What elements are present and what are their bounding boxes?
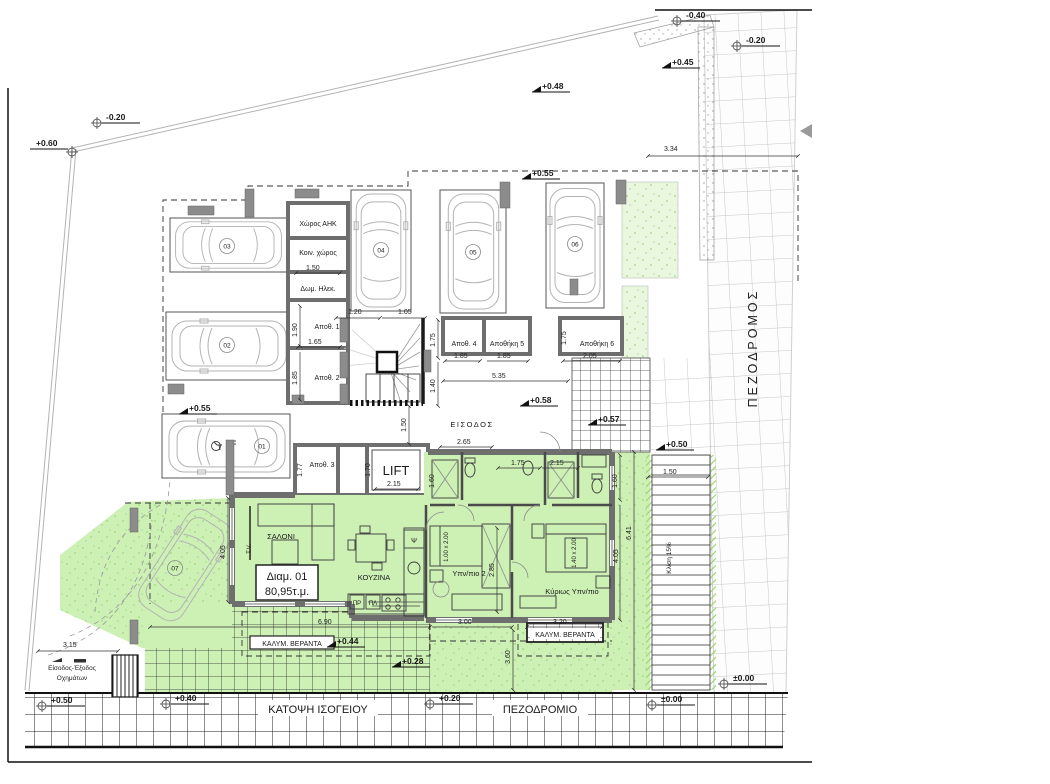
dim-1-50-comm: 1.50 bbox=[306, 265, 320, 272]
driveway-gate bbox=[112, 655, 138, 697]
svg-text:04: 04 bbox=[377, 248, 385, 255]
elevation-top-2: +0.55 bbox=[522, 168, 560, 179]
svg-text:+0.44: +0.44 bbox=[337, 636, 359, 646]
label-lift: LIFT bbox=[383, 463, 410, 478]
dim-3-34: 3.34 bbox=[664, 146, 678, 153]
sidewalk-title-plate: ΠΕΖΟΔΡΟΜΙΟ bbox=[492, 700, 588, 716]
svg-text:ΚΑΛΥΜ. ΒΕΡΑΝΤΑ: ΚΑΛΥΜ. ΒΕΡΑΝΤΑ bbox=[262, 641, 322, 648]
dim-2-15-lift: 2.15 bbox=[387, 481, 401, 488]
dim-1-50-ramp: 1.50 bbox=[663, 469, 677, 476]
veranda-label-left: ΚΑΛΥΜ. ΒΕΡΑΝΤΑ bbox=[250, 636, 334, 649]
dim-1-77: 1.77 bbox=[297, 463, 304, 477]
access-ramp bbox=[646, 455, 716, 690]
svg-text:07: 07 bbox=[171, 566, 179, 573]
svg-text:01: 01 bbox=[258, 444, 266, 451]
svg-text:±0.00: ±0.00 bbox=[733, 673, 754, 683]
svg-text:+0.28: +0.28 bbox=[402, 656, 424, 666]
dim-6-90: 6.90 bbox=[318, 619, 332, 626]
label-ramp-slope: Κλίση 15% bbox=[665, 542, 673, 574]
label-dryer: ΠΛ bbox=[369, 601, 377, 607]
label-fridge: Ψ bbox=[411, 538, 417, 545]
svg-text:+0.55: +0.55 bbox=[532, 168, 554, 178]
label-storage5: Αποθήκη 5 bbox=[490, 341, 524, 348]
label-storage6: Αποθήκη 6 bbox=[580, 341, 614, 348]
dim-1-60-b: 1.60 bbox=[612, 474, 619, 488]
entrance-forecourt bbox=[572, 358, 712, 452]
storage-row bbox=[443, 318, 622, 354]
dim-1-90: 1.90 bbox=[292, 323, 299, 337]
direction-triangle-icon bbox=[800, 124, 812, 138]
dim-2-15-bath: 2.15 bbox=[550, 460, 564, 467]
dim-1-60-a: 1.60 bbox=[429, 474, 436, 488]
label-storage1: Αποθ. 1 bbox=[315, 324, 340, 331]
svg-text:+0.45: +0.45 bbox=[672, 57, 694, 67]
svg-text:06: 06 bbox=[571, 242, 579, 249]
svg-text:+0.48: +0.48 bbox=[542, 81, 564, 91]
svg-text:03: 03 bbox=[223, 244, 231, 251]
ground-floor-plan-drawing: 03 02 01 04 05 06 07 bbox=[0, 0, 1050, 784]
dim-1-85-st2: 1.85 bbox=[292, 371, 299, 385]
svg-text:+0.20: +0.20 bbox=[439, 693, 461, 703]
label-vehicle-access-1: Είσοδος-Έξοδος bbox=[48, 664, 96, 672]
dim-1-20: 1.20 bbox=[348, 309, 362, 316]
dim-1-75-st4: 1.75 bbox=[430, 333, 437, 347]
floor-plan-sheet: 03 02 01 04 05 06 07 bbox=[0, 0, 1050, 784]
svg-text:+0.57: +0.57 bbox=[598, 414, 620, 424]
elevation-parking: +0.55 bbox=[179, 403, 217, 414]
dim-4-05-right: 4.05 bbox=[613, 549, 620, 563]
elevation-top-left-1: -0.20 bbox=[91, 112, 140, 129]
svg-text:05: 05 bbox=[469, 250, 477, 257]
dim-1-85-b: 1.85 bbox=[497, 353, 511, 360]
dim-2-65: 2.65 bbox=[457, 439, 471, 446]
label-ahk-room: Χώρος ΑΗΚ bbox=[299, 220, 337, 228]
sidewalk-title: ΠΕΖΟΔΡΟΜΙΟ bbox=[503, 704, 578, 716]
label-washer: ΠΡ bbox=[353, 601, 361, 607]
svg-text:+0.55: +0.55 bbox=[189, 403, 211, 413]
label-living-room: ΣΑΛΟΝΙ bbox=[267, 532, 295, 541]
svg-text:-0.40: -0.40 bbox=[686, 10, 706, 20]
dim-2-85: 2.85 bbox=[489, 563, 496, 577]
dim-1-75-st6: 1.75 bbox=[561, 331, 568, 345]
label-vehicle-access-2: Οχημάτων bbox=[57, 674, 87, 682]
elevation-entrance: +0.58 bbox=[520, 395, 558, 406]
label-electrical: Δωμ. Ηλεκ. bbox=[300, 286, 335, 293]
label-storage2: Αποθ. 2 bbox=[315, 375, 340, 382]
vehicle-access-arrows bbox=[52, 658, 86, 663]
elevation-top-left-2: +0.60 bbox=[30, 138, 78, 158]
plan-title: ΚΑΤΟΨΗ ΙΣΟΓΕΙΟΥ bbox=[268, 704, 368, 716]
label-communal: Κοιν. χώρος bbox=[299, 249, 337, 257]
label-bedroom2: Υπν/πιο 2 bbox=[452, 569, 485, 578]
label-kitchen: ΚΟΥΖΙΝΑ bbox=[358, 573, 390, 582]
label-pedestrian-way: ΠΕΖΟΔΡΟΜΟΣ bbox=[746, 289, 760, 408]
elevation-top-1: +0.48 bbox=[532, 81, 570, 92]
dim-3-60: 3.60 bbox=[505, 650, 512, 664]
stairwell bbox=[342, 318, 423, 404]
label-master-bedroom: Κύριως Υπν/πιο bbox=[545, 587, 598, 596]
svg-text:+0.40: +0.40 bbox=[175, 693, 197, 703]
svg-text:+0.60: +0.60 bbox=[36, 138, 58, 148]
label-entrance: ΕΙΣΟΔΟΣ bbox=[450, 420, 493, 429]
dim-4-05-left: 4.05 bbox=[220, 545, 227, 559]
apartment-id-label: Διαμ. 01 bbox=[267, 571, 308, 583]
label-storage3: Αποθ. 3 bbox=[310, 462, 335, 469]
svg-text:+0.50: +0.50 bbox=[51, 695, 73, 705]
dim-1-75-bath: 1.75 bbox=[511, 460, 525, 467]
dim-5-35: 5.35 bbox=[492, 373, 506, 380]
dim-3-20: 3.20 bbox=[553, 619, 567, 626]
dim-1-50-hall: 1.50 bbox=[401, 418, 408, 432]
dim-1-40: 1.40 bbox=[430, 379, 437, 393]
dim-6-41: 6.41 bbox=[626, 526, 633, 540]
dim-1-70: 1.70 bbox=[365, 463, 372, 477]
label-tv: T.V. bbox=[247, 544, 253, 554]
dim-1-05: 1.05 bbox=[398, 309, 412, 316]
dim-3-00: 3.00 bbox=[458, 619, 472, 626]
apartment-area-label: 80,95τ.μ. bbox=[265, 586, 309, 598]
svg-text:ΚΑΛΥΜ. ΒΕΡΑΝΤΑ: ΚΑΛΥΜ. ΒΕΡΑΝΤΑ bbox=[535, 632, 595, 639]
dim-2-05: 2.05 bbox=[583, 353, 597, 360]
dim-1-85-a: 1.85 bbox=[454, 353, 468, 360]
svg-text:±0.00: ±0.00 bbox=[661, 694, 682, 704]
svg-text:+0.58: +0.58 bbox=[530, 395, 552, 405]
label-storage4: Αποθ. 4 bbox=[452, 341, 477, 348]
svg-text:+0.50: +0.50 bbox=[666, 439, 688, 449]
apartment-label-box: Διαμ. 01 80,95τ.μ. bbox=[256, 565, 318, 600]
dim-3-15: 3.15 bbox=[63, 642, 77, 649]
label-bed-double: 1.40 x 2.00 bbox=[572, 537, 578, 567]
svg-text:-0.20: -0.20 bbox=[106, 112, 126, 122]
dim-1-65: 1.65 bbox=[308, 339, 322, 346]
plan-title-plate: ΚΑΤΟΨΗ ΙΣΟΓΕΙΟΥ bbox=[258, 700, 378, 716]
elevation-top-right-3: +0.45 bbox=[662, 57, 700, 68]
svg-text:-0.20: -0.20 bbox=[746, 35, 766, 45]
svg-text:02: 02 bbox=[223, 343, 231, 350]
label-bed-single: 1.00 x 2.00 bbox=[444, 531, 450, 561]
